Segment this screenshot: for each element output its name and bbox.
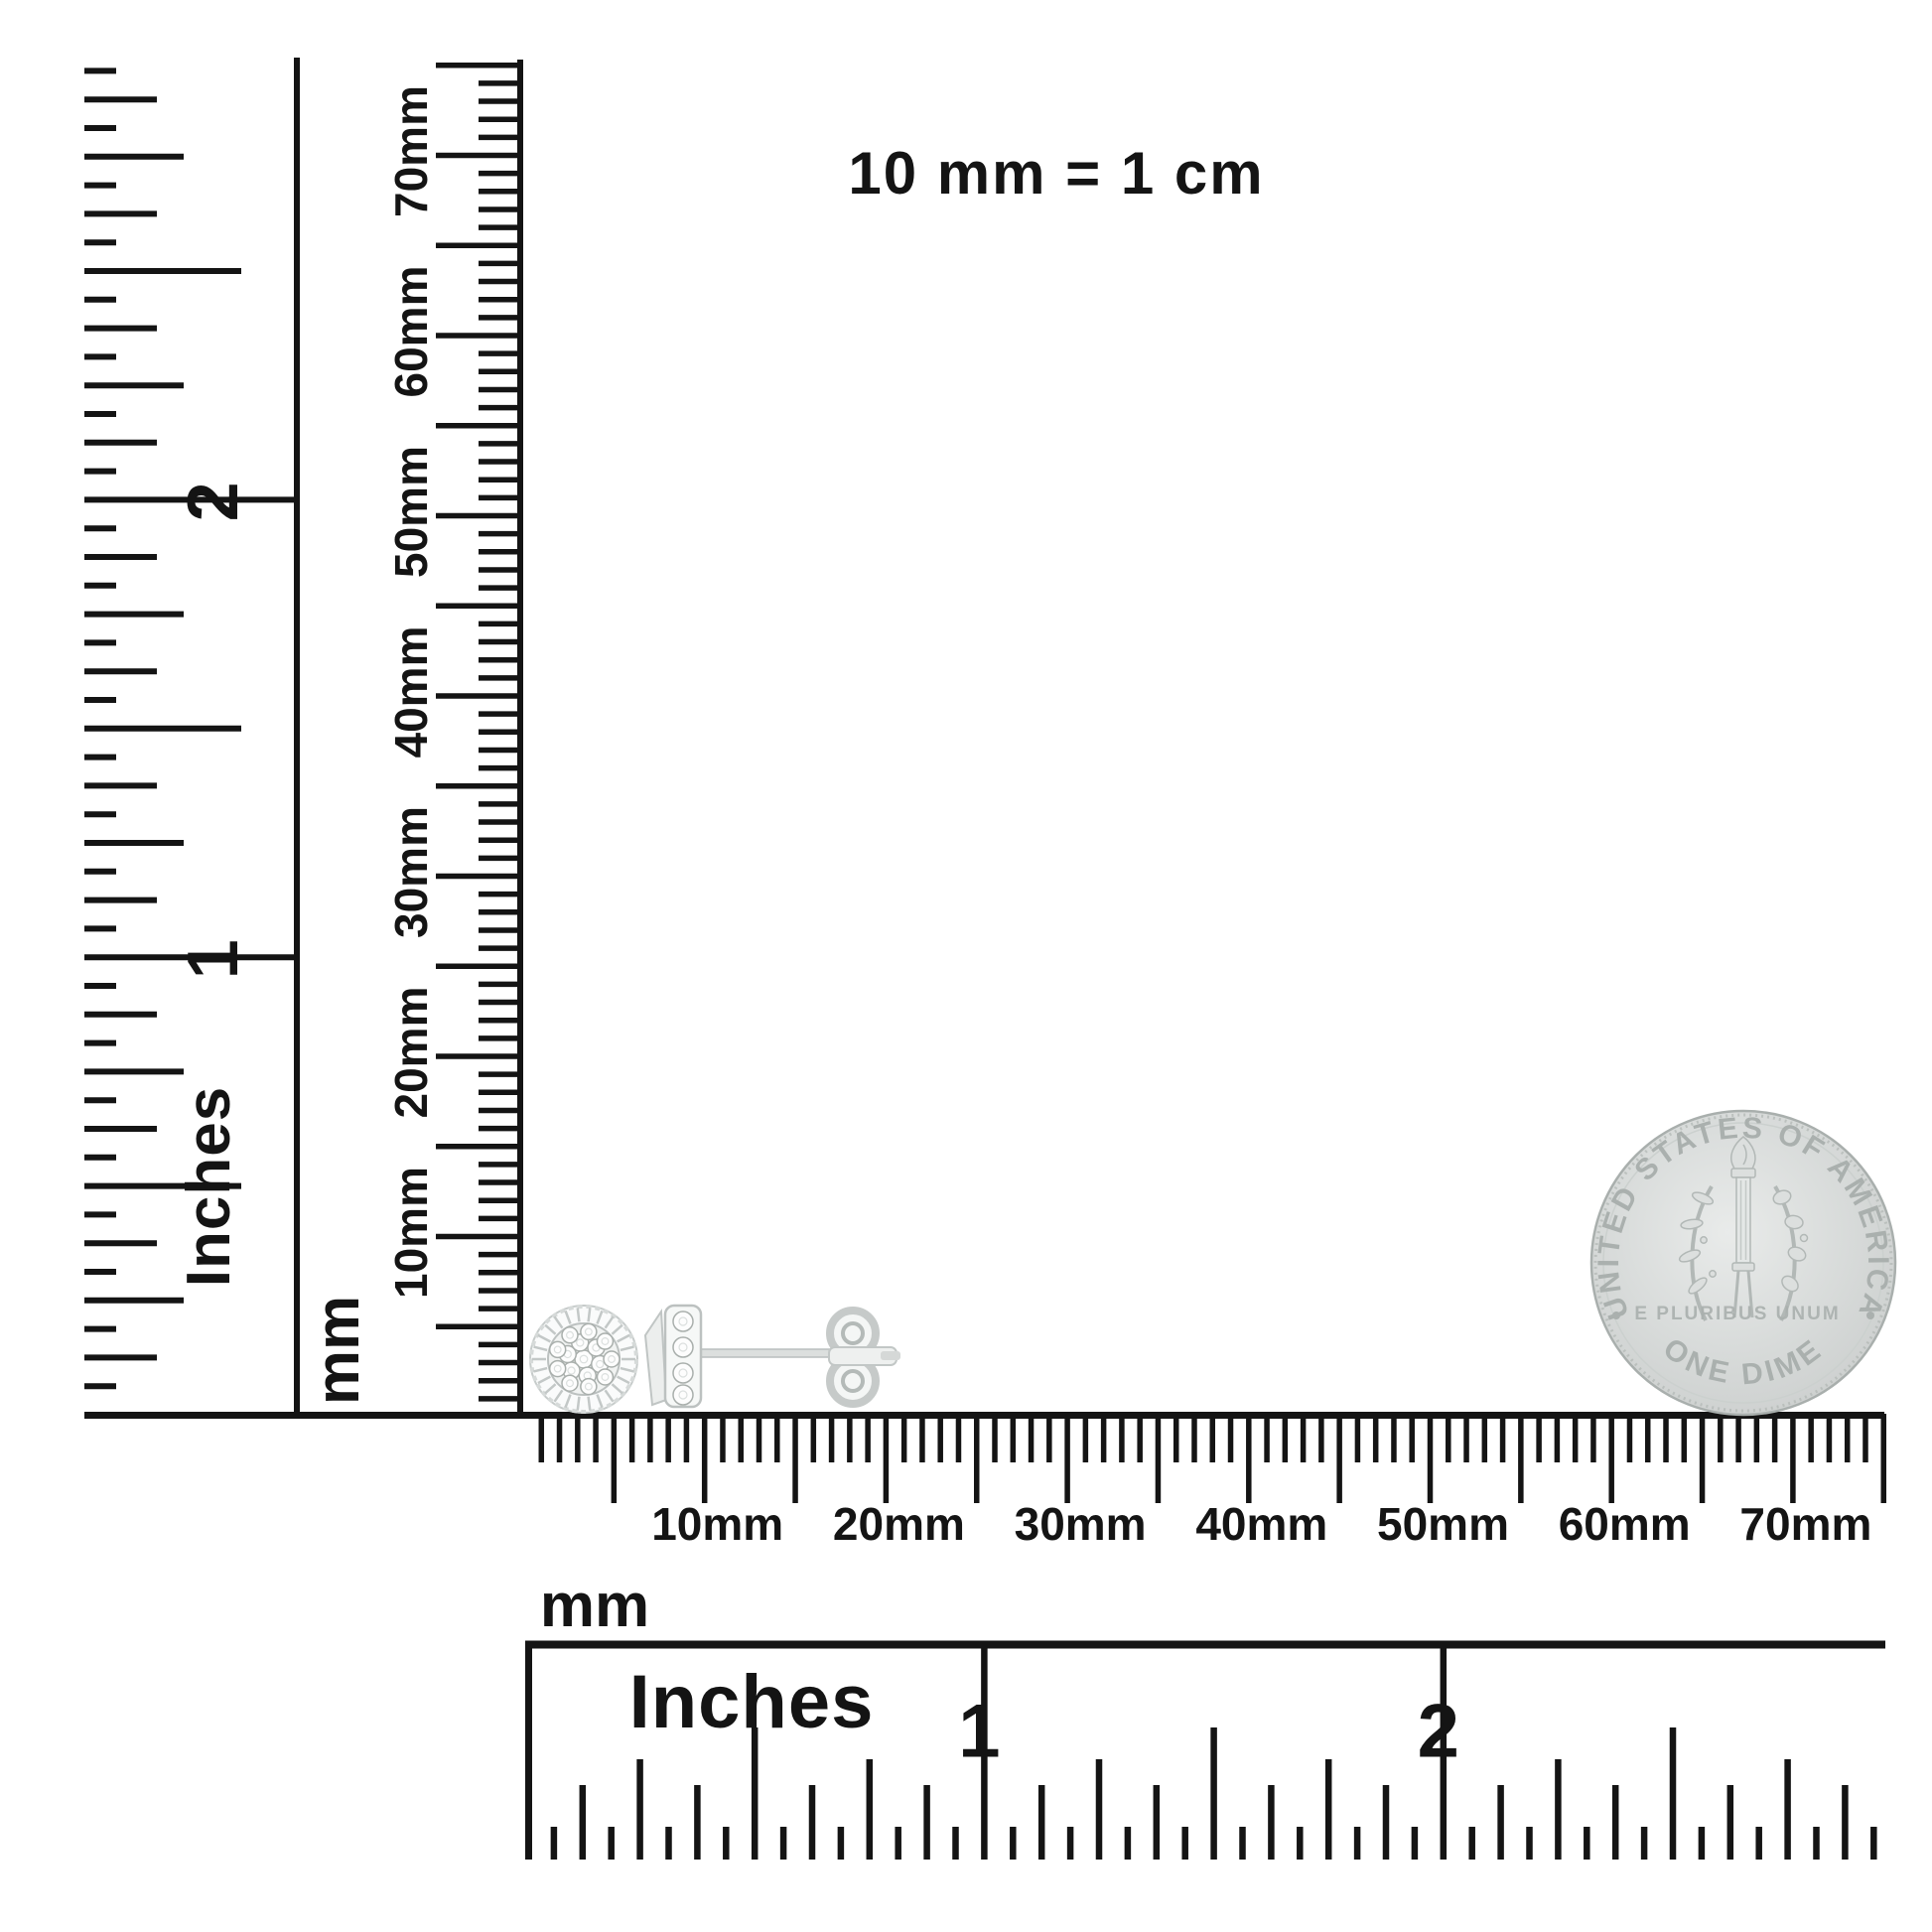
tick-label: 10mm [651,1498,783,1550]
tick-label: 40mm [1195,1498,1327,1550]
tick-label: 70mm [1739,1498,1871,1550]
tick-label: 60mm [385,266,437,398]
tick-label: 70mm [385,85,437,217]
olive-berry [1701,1237,1707,1243]
tick-label: 40mm [385,626,437,759]
tick-label: 50mm [385,446,437,578]
dime-coin-image: UNITED STATES OF AMERICA ONE DIME E PLUR… [1587,1107,1900,1419]
torch-head-band [1731,1169,1755,1177]
tick-label: 2 [174,482,253,521]
tick-label: 20mm [833,1498,965,1550]
tick-label: 20mm [385,987,437,1119]
tick-label: 60mm [1559,1498,1691,1550]
olive-berry [1710,1271,1716,1277]
torch-base-band [1732,1263,1754,1271]
tick-label: 30mm [1015,1498,1147,1550]
post-tip [881,1351,900,1360]
legend-separator-dot [1612,1311,1620,1319]
rulers-linework: 1210mm20mm30mm40mm50mm60mm70mm10mm20mm30… [0,0,1932,1932]
stud-side-basket [645,1311,666,1405]
tick-label: 50mm [1377,1498,1509,1550]
acorn [1801,1235,1808,1242]
product-scale-image: 10 mm = 1 cm Inches mm mm Inches 1210mm2… [0,0,1932,1932]
tick-label: 2 [1418,1690,1459,1774]
diamond-stud-earrings-image [511,1284,908,1423]
torch-body [1736,1177,1750,1263]
tick-label: 1 [174,939,253,979]
tick-label: 1 [958,1690,1000,1774]
vertical-inches-ruler: 12 [84,58,297,1415]
vertical-mm-ruler: 10mm20mm30mm40mm50mm60mm70mm [385,60,520,1415]
legend-separator-dot [1866,1311,1874,1319]
horizontal-inches-ruler: 12 [525,1642,1885,1860]
coin-motto-text: E PLURIBUS UNUM [1634,1304,1840,1324]
stud-earring-front-view [530,1306,637,1413]
butterfly-back [829,1311,900,1404]
stud-earring-side-view [645,1306,900,1407]
tick-label: 30mm [385,806,437,938]
tick-label: 10mm [385,1167,437,1299]
horizontal-mm-ruler: 10mm20mm30mm40mm50mm60mm70mm [541,1414,1883,1550]
